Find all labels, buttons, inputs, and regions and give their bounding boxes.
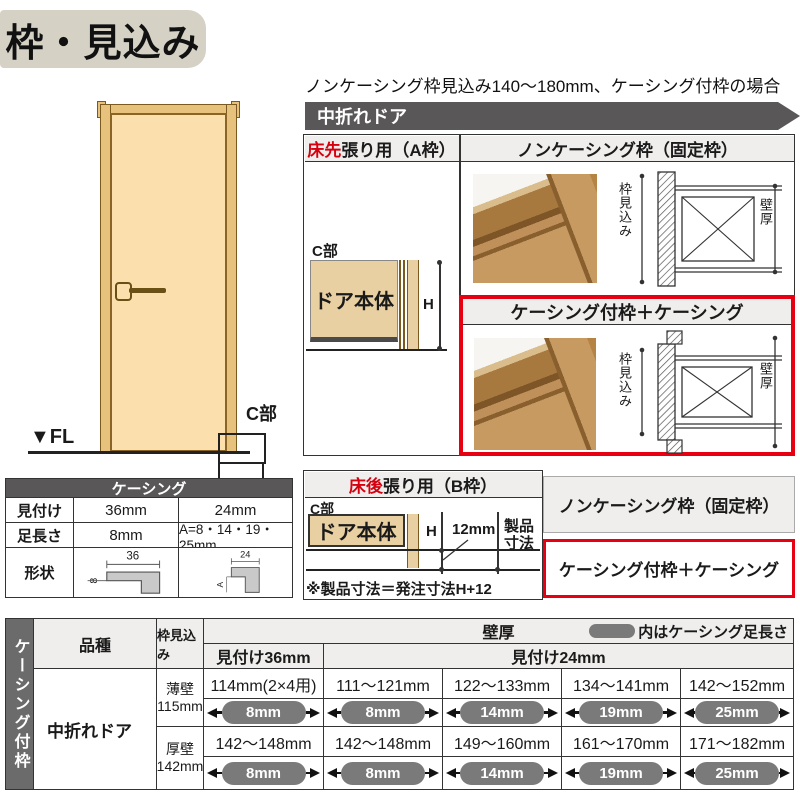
depth-dim-label: 枠見込み <box>615 182 634 278</box>
casing-frame-photo <box>474 338 596 450</box>
a-h-dot-top <box>437 260 442 265</box>
subheader-36: 見付け36mm <box>204 644 324 669</box>
pill-cell: 14mm <box>443 699 562 727</box>
casing-section-diagram: 枠見込み 壁厚 <box>612 330 795 454</box>
value-cell: 114mm(2×4用) <box>204 669 324 699</box>
a-floor-line <box>306 349 447 351</box>
c-part-marker <box>218 433 266 464</box>
wall-type-cell-thin: 薄壁 115mm <box>157 669 204 727</box>
b-dot-floor <box>439 567 444 572</box>
value-cell: 149～160mm <box>443 727 562 757</box>
floor-line <box>28 451 250 454</box>
fl-label: ▼FL <box>30 426 74 449</box>
banner-label: 中折れドア <box>317 103 407 129</box>
svg-text:36: 36 <box>126 550 139 562</box>
panel-a-left-header: 床先張り用（A枠） <box>305 136 459 162</box>
col-header-depth: 枠見込み <box>157 619 204 669</box>
a-h-dim-line <box>439 262 441 349</box>
row-label: 見付け <box>6 497 74 522</box>
wall-thickness-header: 壁厚 内はケーシング足長さ <box>204 619 793 644</box>
a-door-body-box: ドア本体 <box>310 260 398 342</box>
kind-cell: 中折れドア <box>34 669 157 789</box>
wall-dim-label: 壁厚 <box>756 198 775 260</box>
pill-cell: 8mm <box>204 757 324 789</box>
header-a-rest: 張り用（A枠） <box>341 136 455 161</box>
pill-cell: 8mm <box>324 757 443 789</box>
b-product-dim-line <box>497 512 499 574</box>
a-frame-line2 <box>403 260 405 350</box>
b-floor-line <box>306 569 540 571</box>
col-header-kind: 品種 <box>34 619 157 669</box>
wall-type-cell-thick: 厚壁 142mm <box>157 727 204 789</box>
door-handle-lever <box>129 288 166 293</box>
b-gap-label: 12mm <box>452 521 495 538</box>
pill-cell: 8mm <box>204 699 324 727</box>
legend-pill <box>589 624 635 638</box>
c-callout-leg-left <box>218 464 220 478</box>
depth-dim-label: 枠見込み <box>615 352 634 436</box>
b-h-label: H <box>426 523 437 540</box>
header-a-em: 床先 <box>307 136 341 161</box>
value-cell: 134～141mm <box>562 669 681 699</box>
page-title: 枠・見込み <box>0 10 206 68</box>
svg-text:24: 24 <box>240 549 250 559</box>
casing-spec-table: ケーシング 見付け 36mm 24mm 足長さ 8mm A=8・14・19・25… <box>5 478 293 598</box>
b-note: ※製品寸法＝発注寸法H+12 <box>306 578 492 599</box>
pill-cell: 19mm <box>562 699 681 727</box>
noncasing-frame-photo <box>473 174 597 283</box>
shape-24-cell: 24 A <box>179 547 292 597</box>
value-cell: 142～152mm <box>681 669 793 699</box>
casing-header: ケーシング付枠＋ケーシング <box>463 299 791 325</box>
pill-cell: 14mm <box>443 757 562 789</box>
a-c-label: C部 <box>312 240 338 261</box>
header-b-em: 床後 <box>349 472 383 497</box>
shape-36-diagram: 36 8 <box>76 549 176 597</box>
pill-cell: 25mm <box>681 757 793 789</box>
cell-value: 8mm <box>74 522 179 547</box>
value-cell: 111～121mm <box>324 669 443 699</box>
shape-24-diagram: 24 A <box>196 549 276 597</box>
pill-cell: 19mm <box>562 757 681 789</box>
value-cell: 142～148mm <box>324 727 443 757</box>
legend: 内はケーシング足長さ <box>589 619 788 643</box>
noncasing-section-diagram: 枠見込み 壁厚 <box>612 170 795 288</box>
b-option-casing: ケーシング付枠＋ケーシング <box>543 539 795 598</box>
cell-value: A=8・14・19・25mm <box>179 522 292 547</box>
casing-table-title: ケーシング <box>6 479 292 497</box>
pill-cell: 25mm <box>681 699 793 727</box>
row-label: 形状 <box>6 547 74 597</box>
b-door-body-box: ドア本体 <box>308 514 405 547</box>
panel-b-header: 床後張り用（B枠） <box>305 472 542 498</box>
b-option-noncasing: ノンケーシング枠（固定枠） <box>543 476 795 533</box>
value-cell: 142～148mm <box>204 727 324 757</box>
header-b-rest: 張り用（B枠） <box>383 472 497 497</box>
a-frame-strip <box>407 260 419 350</box>
shape-36-cell: 36 8 <box>74 547 179 597</box>
a-h-label: H <box>423 296 434 313</box>
value-cell: 161～170mm <box>562 727 681 757</box>
b-frame-strip <box>407 514 419 568</box>
table-side-label: ケーシング付枠 <box>6 619 34 789</box>
top-note: ノンケーシング枠見込み140～180mm、ケーシング付枠の場合 <box>305 72 800 97</box>
row-label: 足長さ <box>6 522 74 547</box>
b-dot-product <box>495 567 500 572</box>
value-cell: 122～133mm <box>443 669 562 699</box>
wall-dim-label: 壁厚 <box>756 362 775 424</box>
value-cell: 171～182mm <box>681 727 793 757</box>
svg-text:A: A <box>214 581 224 587</box>
b-gap-leader <box>438 538 470 562</box>
c-part-label: C部 <box>246 400 277 426</box>
legend-text: 内はケーシング足長さ <box>638 621 788 642</box>
b-product-label: 製品 寸法 <box>504 518 534 552</box>
page: 枠・見込み ▼FL C部 ノンケーシング枠見込み140～180mm、ケーシング付… <box>0 0 800 800</box>
noncasing-header: ノンケーシング枠（固定枠） <box>461 136 794 162</box>
dimension-table: ケーシング付枠 品種 枠見込み 壁厚 内はケーシング足長さ 見付け36mm 見付… <box>5 618 794 790</box>
cell-value: 36mm <box>74 497 179 522</box>
door-jamb-right <box>226 104 237 452</box>
c-callout-leg-right <box>262 464 264 478</box>
subheader-24: 見付け24mm <box>324 644 793 669</box>
pill-cell: 8mm <box>324 699 443 727</box>
section-banner: 中折れドア <box>305 102 800 130</box>
a-frame-line1 <box>399 260 401 350</box>
a-h-dot-bottom <box>437 346 442 351</box>
